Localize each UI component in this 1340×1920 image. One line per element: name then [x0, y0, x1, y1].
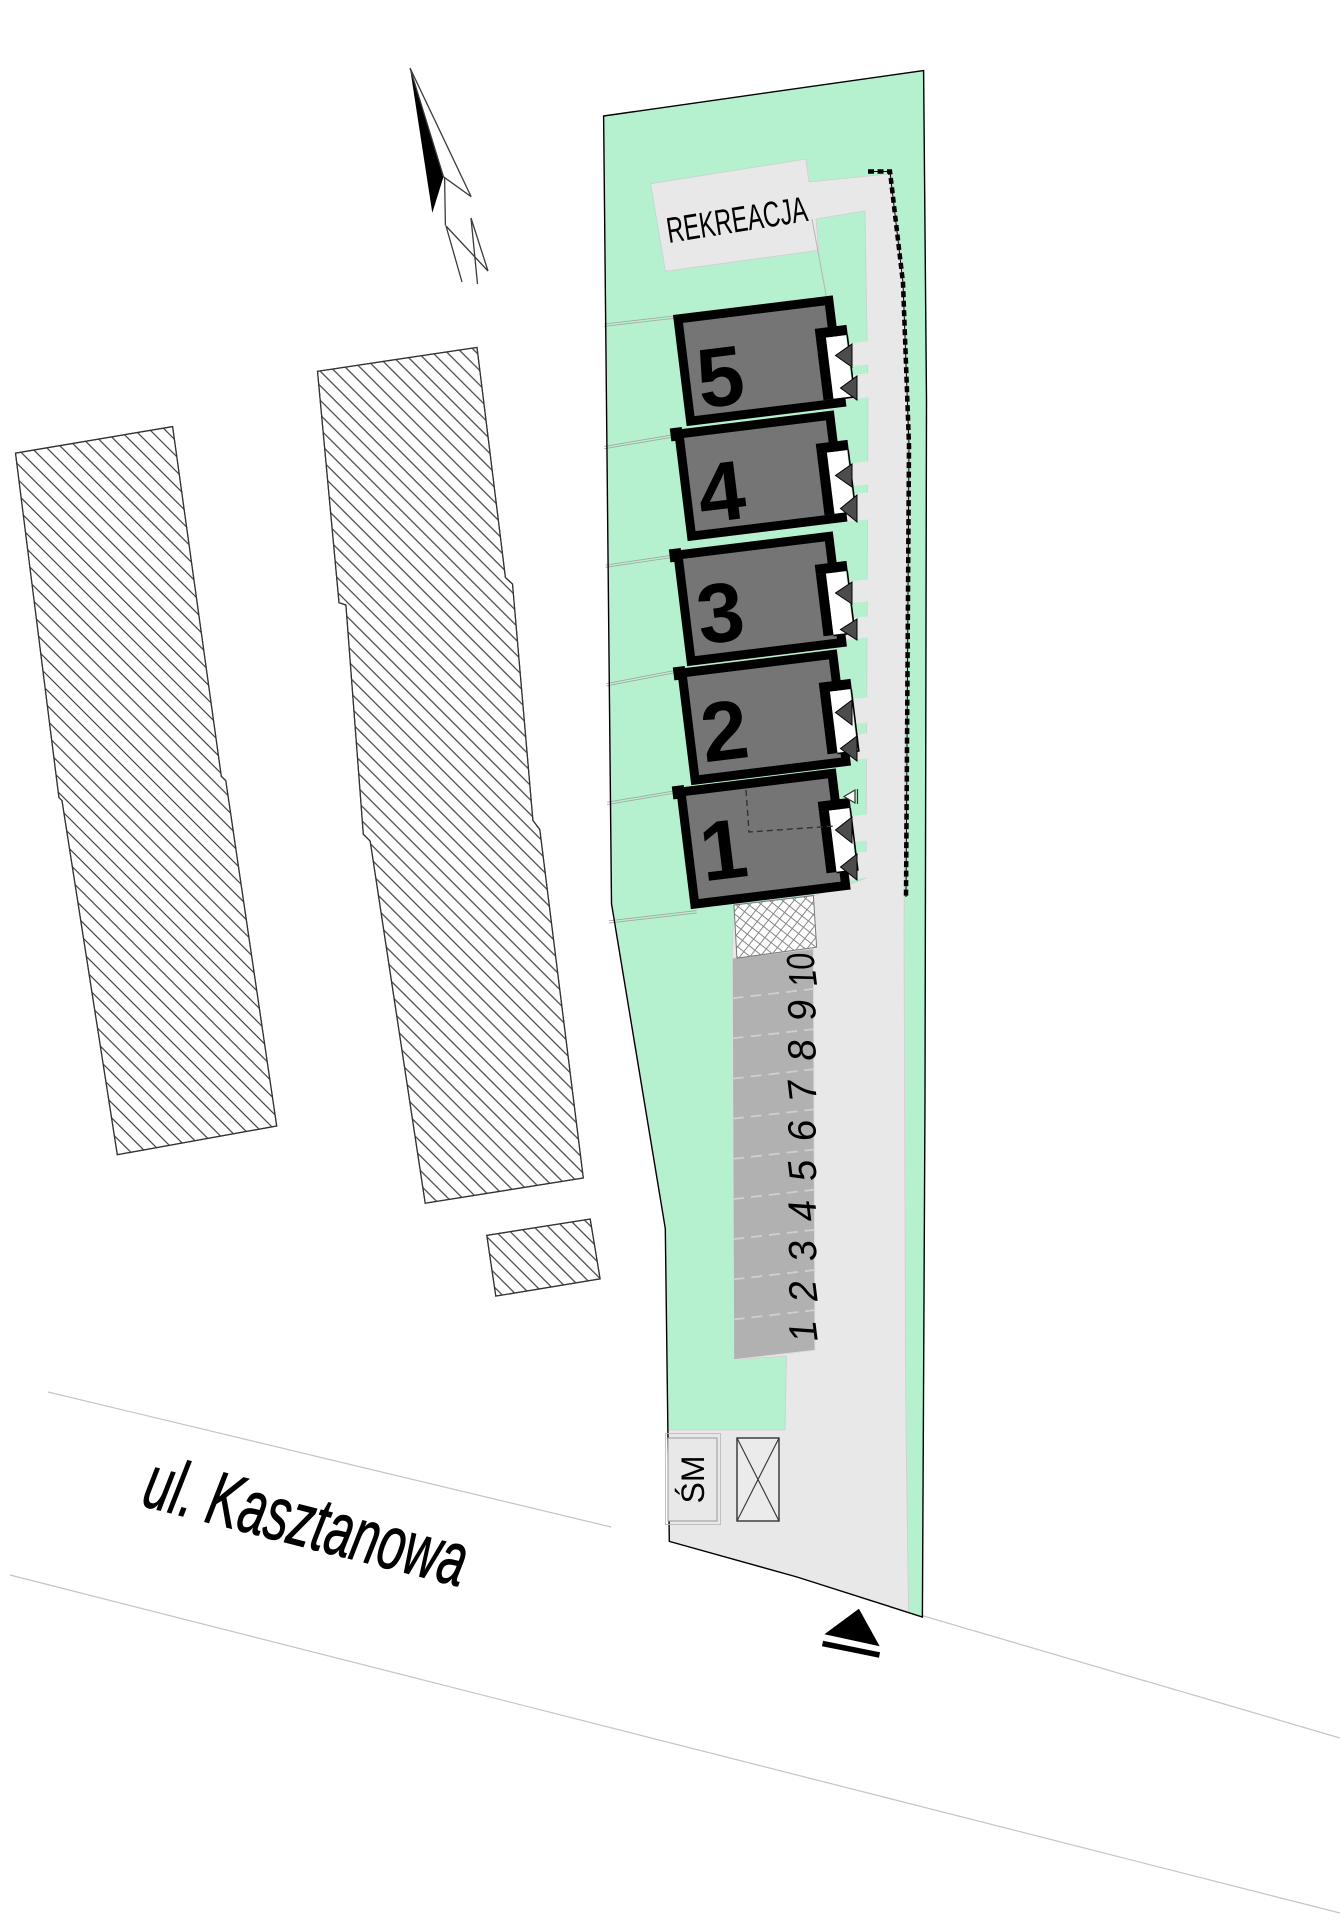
svg-text:ŚM: ŚM [675, 1456, 711, 1504]
svg-text:10: 10 [779, 950, 826, 989]
